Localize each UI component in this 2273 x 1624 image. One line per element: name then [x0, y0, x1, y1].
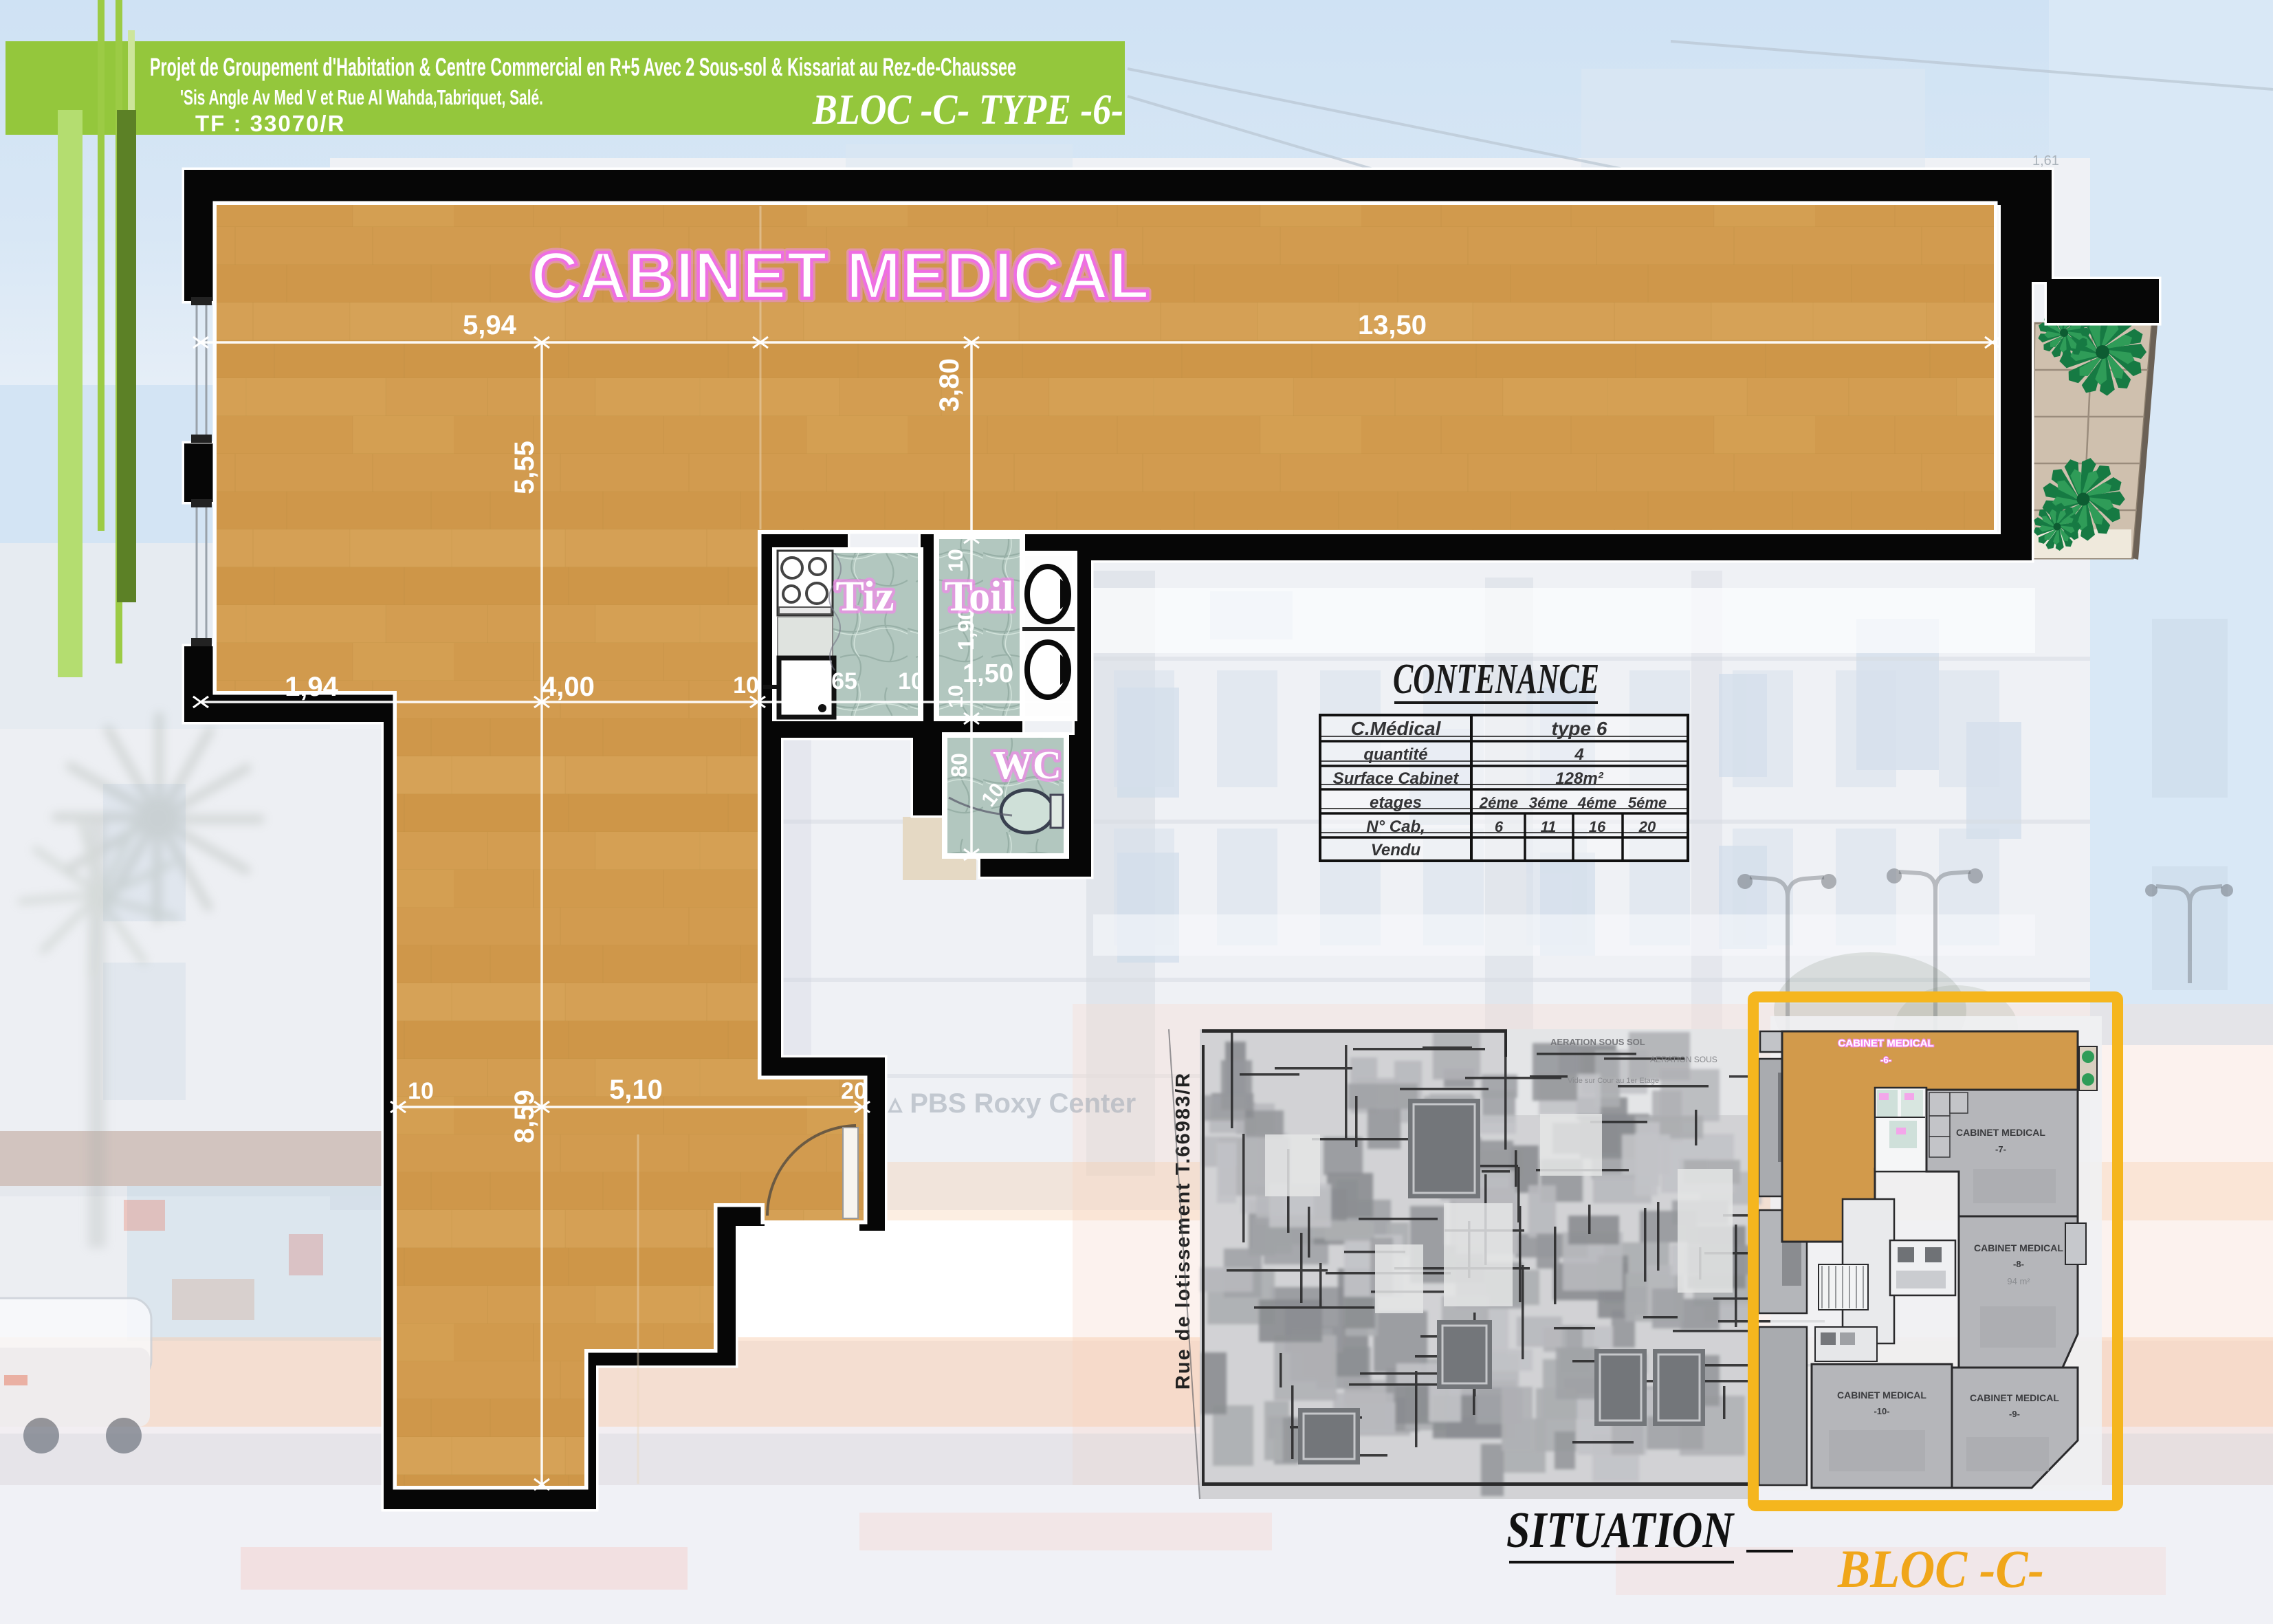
svg-text:BLOC -C-: BLOC -C- [1837, 1539, 2044, 1599]
svg-text:10: 10 [945, 549, 967, 571]
svg-text:CONTENANCE: CONTENANCE [1393, 656, 1599, 703]
svg-text:CABINET MEDICAL: CABINET MEDICAL [1956, 1127, 2045, 1138]
svg-text:CABINET MEDICAL: CABINET MEDICAL [1974, 1242, 2063, 1253]
svg-text:4,00: 4,00 [541, 672, 595, 702]
svg-text:CABINET MEDICAL: CABINET MEDICAL [1970, 1392, 2059, 1403]
svg-text:-10-: -10- [1874, 1406, 1889, 1416]
svg-text:65: 65 [831, 668, 857, 694]
svg-text:6: 6 [1495, 818, 1504, 835]
svg-text:N° Cab,: N° Cab, [1366, 818, 1425, 836]
svg-text:2éme: 2éme [1479, 794, 1518, 811]
svg-text:type 6: type 6 [1552, 718, 1607, 739]
svg-text:Projet de Groupement d'Habitat: Projet de Groupement d'Habitation & Cent… [150, 53, 1016, 81]
svg-text:-6-: -6- [1880, 1055, 1891, 1065]
svg-text:1,94: 1,94 [285, 672, 339, 702]
svg-text:etages: etages [1370, 793, 1422, 812]
svg-text:TF : 33070/R: TF : 33070/R [195, 111, 345, 136]
svg-text:1,61: 1,61 [2032, 153, 2059, 168]
svg-text:5,55: 5,55 [509, 441, 540, 494]
svg-text:3,80: 3,80 [934, 358, 965, 412]
svg-text:-9-: -9- [2009, 1409, 2020, 1419]
svg-text:11: 11 [1541, 818, 1557, 835]
svg-text:80: 80 [947, 753, 971, 778]
svg-text:-7-: -7- [1995, 1144, 2006, 1154]
svg-text:quantité: quantité [1363, 745, 1427, 764]
svg-text:10: 10 [733, 672, 759, 699]
svg-text:16: 16 [1589, 818, 1606, 835]
svg-text:5,10: 5,10 [609, 1075, 663, 1105]
svg-text:WC: WC [993, 743, 1062, 787]
svg-text:▵ PBS Roxy Center: ▵ PBS Roxy Center [888, 1088, 1136, 1119]
svg-text:13,50: 13,50 [1358, 310, 1427, 340]
svg-text:10: 10 [898, 668, 924, 694]
svg-text:1,50: 1,50 [963, 659, 1013, 688]
svg-text:Rue de lotissement T.66983/R: Rue de lotissement T.66983/R [1172, 1072, 1194, 1390]
svg-text:C.Médical: C.Médical [1351, 718, 1442, 739]
svg-text:94 m²: 94 m² [2007, 1276, 2030, 1286]
svg-text:5éme: 5éme [1628, 794, 1667, 811]
svg-text:Toil: Toil [944, 573, 1013, 620]
svg-text:CABINET MEDICAL: CABINET MEDICAL [531, 238, 1150, 313]
svg-text:4éme: 4éme [1577, 794, 1616, 811]
svg-text:4: 4 [1574, 745, 1583, 764]
svg-text:Vendu: Vendu [1371, 841, 1421, 859]
svg-text:128m²: 128m² [1555, 769, 1603, 788]
svg-text:3éme: 3éme [1529, 794, 1568, 811]
svg-text:BLOC -C- TYPE -6-: BLOC -C- TYPE -6- [812, 87, 1123, 133]
svg-text:5,94: 5,94 [463, 310, 517, 340]
svg-text:Tiz: Tiz [836, 573, 894, 620]
svg-text:CABINET MEDICAL: CABINET MEDICAL [1837, 1390, 1926, 1401]
svg-text:20: 20 [841, 1078, 867, 1104]
svg-text:Surface Cabinet: Surface Cabinet [1333, 769, 1460, 788]
svg-text:SITUATION: SITUATION [1506, 1502, 1735, 1559]
svg-text:8,59: 8,59 [509, 1090, 540, 1143]
svg-text:AERATION SOUS SOL: AERATION SOUS SOL [1550, 1037, 1645, 1047]
svg-text:Vide sur Cour au 1er Etage: Vide sur Cour au 1er Etage [1568, 1077, 1659, 1085]
svg-text:-8-: -8- [2013, 1259, 2024, 1269]
svg-text:CABINET MEDICAL: CABINET MEDICAL [1838, 1038, 1933, 1049]
svg-text:10: 10 [945, 685, 967, 707]
svg-text:10: 10 [408, 1078, 434, 1104]
svg-text:20: 20 [1638, 818, 1656, 835]
svg-text:'Sis Angle Av Med V et Rue Al: 'Sis Angle Av Med V et Rue Al Wahda,Tabr… [180, 85, 543, 109]
svg-text:AERATION SOUS: AERATION SOUS [1650, 1055, 1717, 1064]
